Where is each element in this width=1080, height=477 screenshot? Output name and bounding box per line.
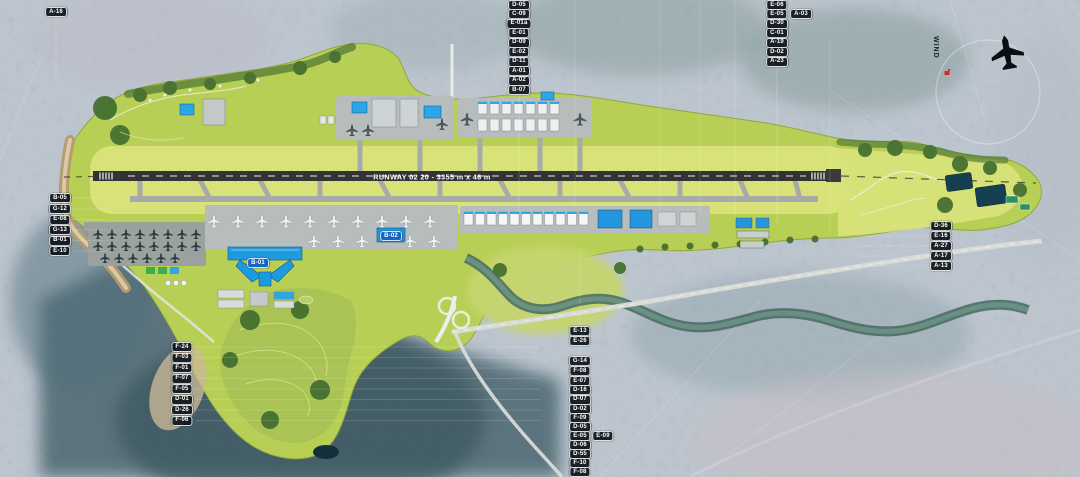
small-pond: [313, 445, 339, 459]
hangar: [372, 99, 396, 127]
cargo-terminal: [598, 210, 622, 228]
airport-masterplan-map: WIND RUNWAY 02 20 - 3355 m x 46 m A-16D-…: [0, 0, 1080, 477]
sports-court: [1020, 204, 1030, 210]
warehouse: [680, 212, 696, 226]
warehouse: [658, 212, 676, 226]
runway-label: RUNWAY 02 20 - 3355 m x 46 m: [373, 173, 490, 182]
hangar: [400, 99, 418, 127]
support-building: [170, 267, 179, 274]
blue-roof-building: [424, 106, 441, 118]
gray-building: [203, 99, 225, 125]
blue-roof-building: [541, 92, 554, 100]
runway-turnpad: [826, 169, 841, 182]
wind-label: WIND: [932, 36, 939, 59]
blue-roof-building: [180, 104, 194, 115]
support-building: [158, 267, 167, 274]
map-canvas: WIND RUNWAY 02 20 - 3355 m x 46 m: [0, 0, 1080, 477]
fuel-tanks: [165, 280, 187, 286]
cargo-terminal: [630, 210, 652, 228]
wetland: [467, 246, 623, 334]
pier-building: [377, 228, 405, 242]
support-building: [146, 267, 155, 274]
blue-roof-building: [352, 102, 367, 113]
sports-court: [1006, 196, 1018, 203]
extended-centerline-west: [64, 177, 93, 178]
